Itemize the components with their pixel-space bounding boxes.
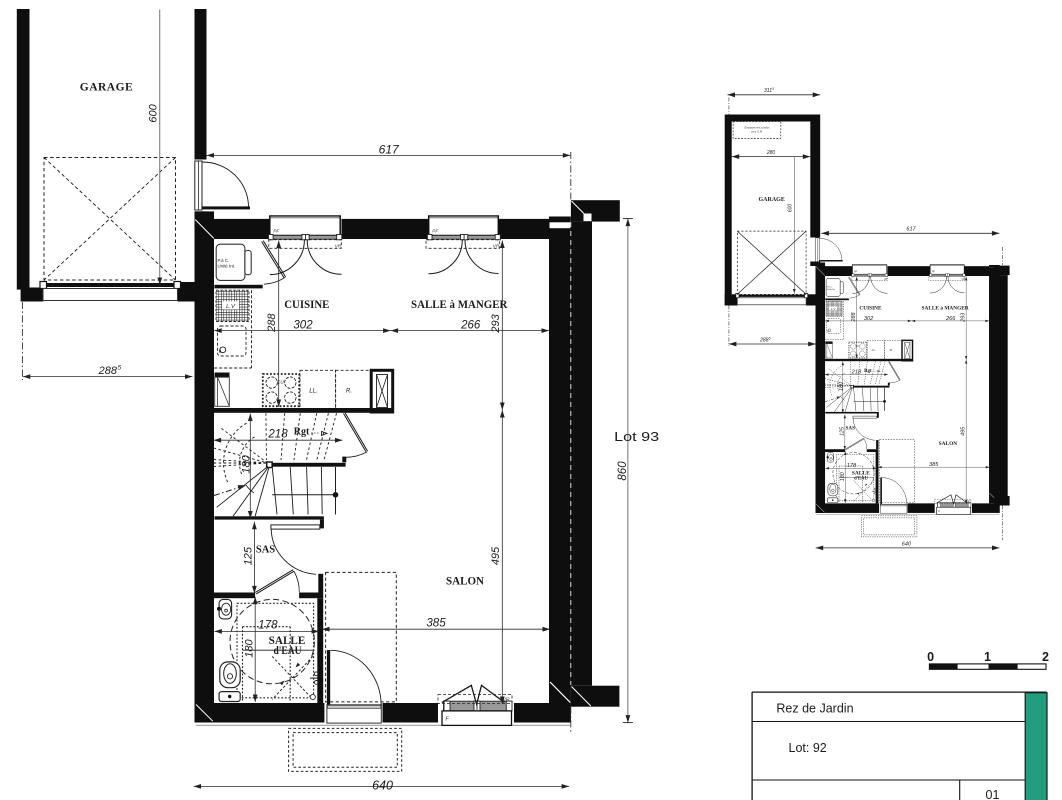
svg-text:01: 01	[986, 788, 1000, 800]
svg-text:pour O.M.: pour O.M.	[751, 130, 763, 134]
svg-text:Rez de Jardin: Rez de Jardin	[776, 701, 853, 715]
svg-text:5: 5	[118, 365, 122, 372]
svg-text:GARAGE: GARAGE	[759, 197, 785, 203]
svg-text:288: 288	[759, 338, 769, 344]
svg-text:GARAGE: GARAGE	[80, 82, 133, 94]
svg-text:617: 617	[906, 227, 916, 233]
svg-text:Lot 93: Lot 93	[614, 429, 659, 444]
svg-text:288: 288	[98, 365, 118, 377]
svg-text:860: 860	[617, 461, 629, 481]
svg-text:5: 5	[772, 87, 774, 91]
svg-text:Lot: 92: Lot: 92	[789, 741, 827, 755]
svg-text:311: 311	[764, 88, 772, 94]
svg-text:Emplacement conduit: Emplacement conduit	[745, 126, 770, 130]
svg-text:640: 640	[372, 778, 393, 792]
svg-text:640: 640	[902, 541, 912, 547]
svg-text:600: 600	[148, 103, 160, 122]
svg-text:600: 600	[788, 204, 794, 213]
svg-text:280: 280	[766, 150, 776, 156]
svg-text:0: 0	[927, 650, 934, 664]
svg-text:617: 617	[379, 143, 400, 157]
svg-text:1: 1	[984, 650, 991, 664]
svg-text:2: 2	[1042, 650, 1049, 664]
svg-text:5: 5	[769, 336, 771, 340]
